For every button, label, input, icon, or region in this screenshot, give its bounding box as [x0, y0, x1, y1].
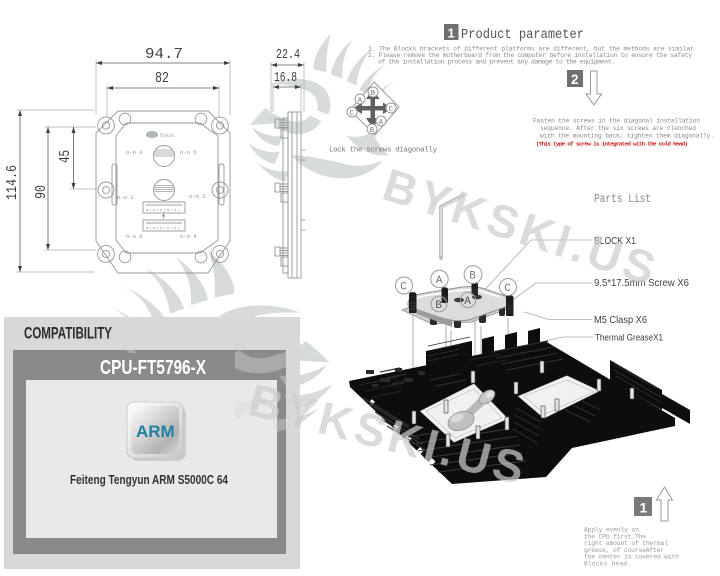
svg-text:A: A — [358, 97, 363, 105]
svg-text:2: 2 — [571, 72, 579, 87]
svg-text:ARM: ARM — [136, 422, 175, 441]
svg-text:45: 45 — [58, 150, 74, 163]
svg-text:A: A — [379, 119, 384, 127]
svg-text:M5 Clasp X6: M5 Clasp X6 — [594, 314, 647, 326]
svg-text:A: A — [436, 275, 443, 287]
svg-text:Parts List: Parts List — [594, 192, 651, 206]
svg-text:Bykski: Bykski — [160, 133, 174, 139]
svg-text:B: B — [435, 300, 442, 312]
svg-text:C: C — [350, 110, 355, 118]
svg-text:with the mounting back, tighte: with the mounting back, tighten them dia… — [540, 133, 714, 140]
svg-text:114.6: 114.6 — [5, 165, 21, 200]
svg-text:of the installation process an: of the installation process and prevent … — [378, 59, 615, 66]
svg-text:Lock the screws diagonally: Lock the screws diagonally — [329, 147, 437, 155]
svg-text:B: B — [370, 127, 375, 135]
svg-text:o-o 1: o-o 1 — [117, 194, 134, 201]
svg-text:Product parameter: Product parameter — [461, 27, 584, 43]
svg-text:(This type of screw is integra: (This type of screw is integrated with t… — [536, 141, 688, 148]
svg-text:o-o 2: o-o 2 — [189, 193, 206, 200]
svg-text:sequence. After the six screws: sequence. After the six screws are clenc… — [540, 125, 696, 132]
svg-text:B: B — [469, 271, 476, 283]
svg-text:C: C — [504, 283, 511, 295]
svg-text:22.4: 22.4 — [276, 48, 300, 63]
svg-text:o-o 5: o-o 5 — [180, 149, 197, 156]
svg-text:1: 1 — [448, 26, 455, 41]
svg-text:Thermal GreaseX1: Thermal GreaseX1 — [595, 333, 663, 344]
svg-text:Feiteng Tengyun ARM S5000C 64: Feiteng Tengyun ARM S5000C 64 — [70, 473, 228, 487]
svg-text:A: A — [464, 296, 471, 308]
svg-text:C: C — [400, 282, 407, 294]
svg-text:COMPATIBILITY: COMPATIBILITY — [24, 325, 112, 343]
svg-text:94.7: 94.7 — [145, 47, 183, 63]
svg-text:CPU-FT5796-X: CPU-FT5796-X — [100, 357, 207, 379]
svg-text:o-o 3: o-o 3 — [126, 149, 143, 156]
svg-text:1: 1 — [640, 500, 648, 516]
svg-text:Fasten the screws in the diago: Fasten the screws in the diagonal instal… — [533, 118, 700, 125]
svg-text:B: B — [371, 90, 376, 98]
svg-text:Blocks head.: Blocks head. — [584, 560, 631, 567]
svg-text:16.8: 16.8 — [274, 71, 297, 86]
svg-text:o-o 4: o-o 4 — [180, 233, 197, 240]
svg-text:82: 82 — [155, 71, 169, 87]
svg-text:o-o 6: o-o 6 — [126, 233, 143, 240]
svg-text:C: C — [389, 106, 394, 114]
